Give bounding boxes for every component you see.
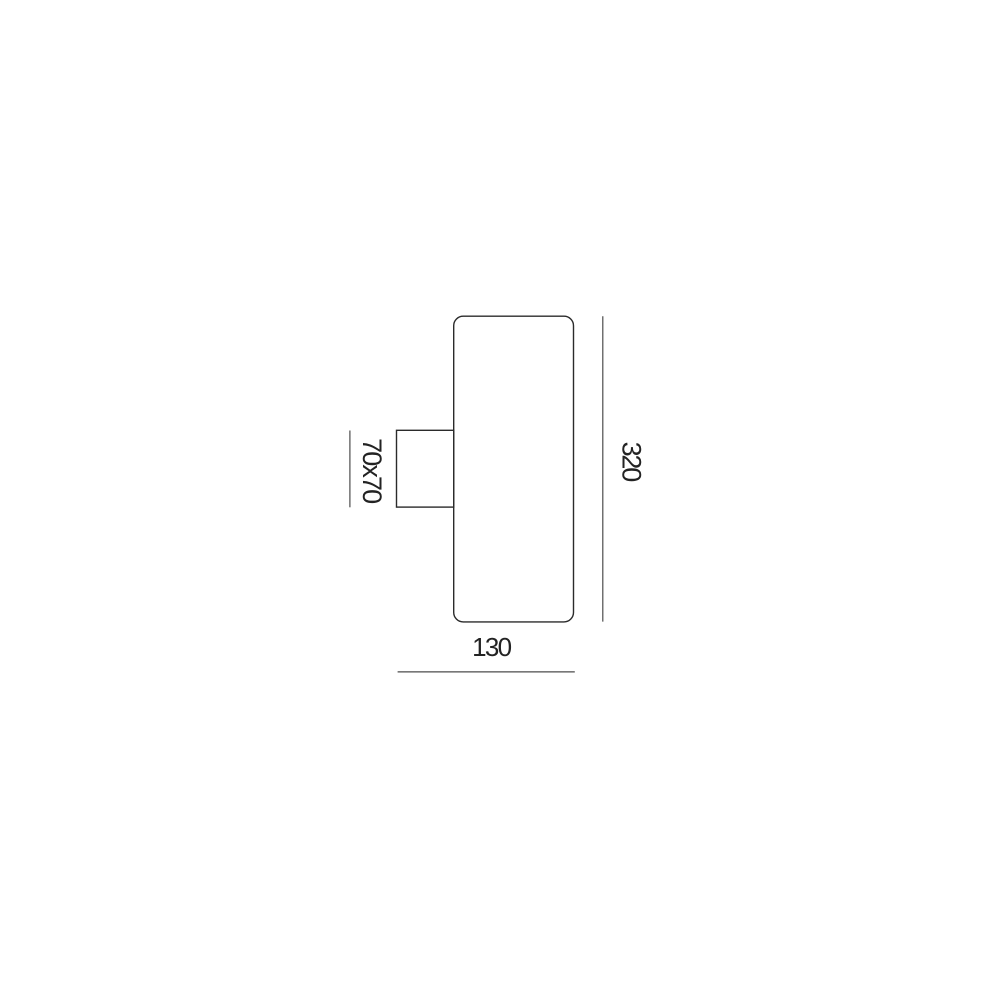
svg-text:70x70: 70x70: [357, 438, 387, 503]
svg-text:320: 320: [616, 442, 646, 482]
svg-text:130: 130: [472, 632, 512, 662]
